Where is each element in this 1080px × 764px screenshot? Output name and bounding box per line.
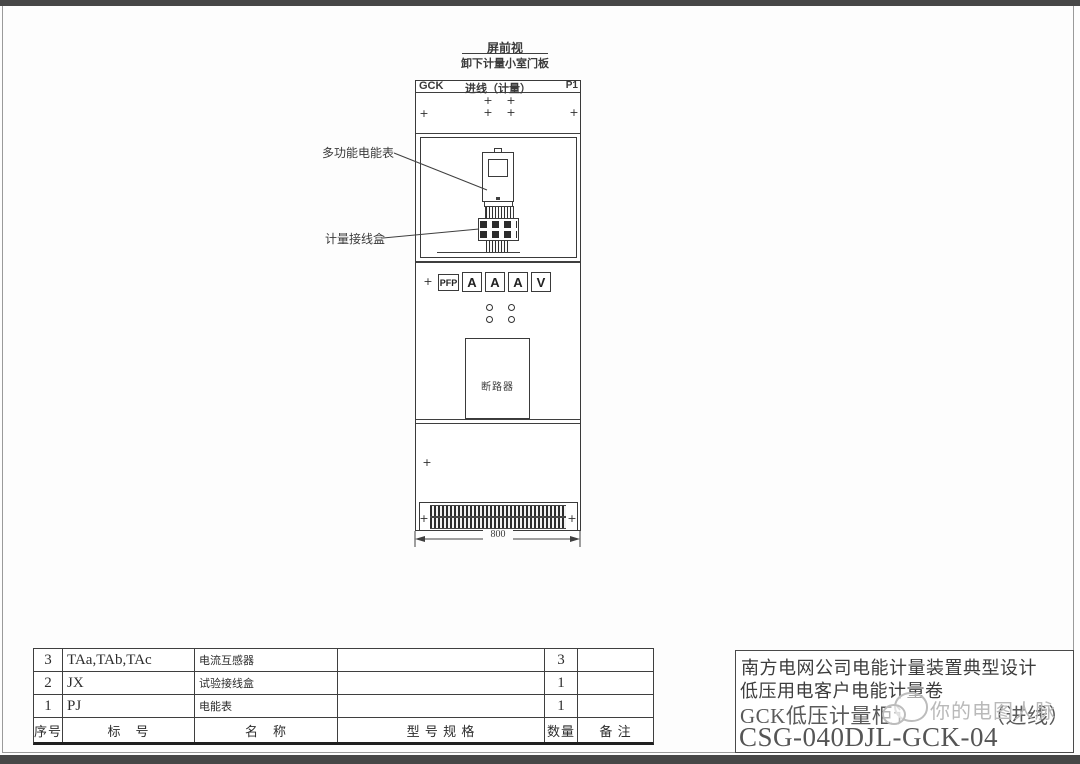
table-header-note: 备 注 xyxy=(578,718,653,742)
table-cell xyxy=(338,672,545,695)
table-cell: 2 xyxy=(34,672,63,695)
table-header-qty: 数量 xyxy=(545,718,578,742)
table-cell xyxy=(338,695,545,718)
table-cell: 1 xyxy=(545,672,578,695)
table-cell xyxy=(578,672,653,695)
table-header-name: 名 称 xyxy=(195,718,338,742)
watermark: 你的电图人脉 xyxy=(878,688,1078,734)
table-cell xyxy=(578,695,653,718)
parts-table: 3 TAa,TAb,TAc 电流互感器 3 2 JX 试验接线盒 1 1 PJ … xyxy=(33,648,654,745)
table-cell xyxy=(338,649,545,672)
table-header-spec: 型 号 规 格 xyxy=(338,718,545,742)
watermark-bubble-icon xyxy=(882,704,906,725)
table-cell: 1 xyxy=(545,695,578,718)
table-cell: 试验接线盒 xyxy=(195,672,338,695)
table-cell xyxy=(578,649,653,672)
width-dimension: 800 xyxy=(483,529,513,540)
table-cell: 电能表 xyxy=(195,695,338,718)
table-cell: 3 xyxy=(34,649,63,672)
table-cell: 3 xyxy=(545,649,578,672)
drawing-sheet: 屏前视 卸下计量小室门板 GCK 进线（计量） P1 + + + + + + 多… xyxy=(0,0,1080,764)
table-cell: TAa,TAb,TAc xyxy=(63,649,195,672)
table-cell: 电流互感器 xyxy=(195,649,338,672)
table-cell: JX xyxy=(63,672,195,695)
watermark-text: 你的电图人脉 xyxy=(930,695,1056,724)
table-header-mark: 标 号 xyxy=(63,718,195,742)
table-header-seq: 序号 xyxy=(34,718,63,742)
table-cell: PJ xyxy=(63,695,195,718)
table-cell: 1 xyxy=(34,695,63,718)
